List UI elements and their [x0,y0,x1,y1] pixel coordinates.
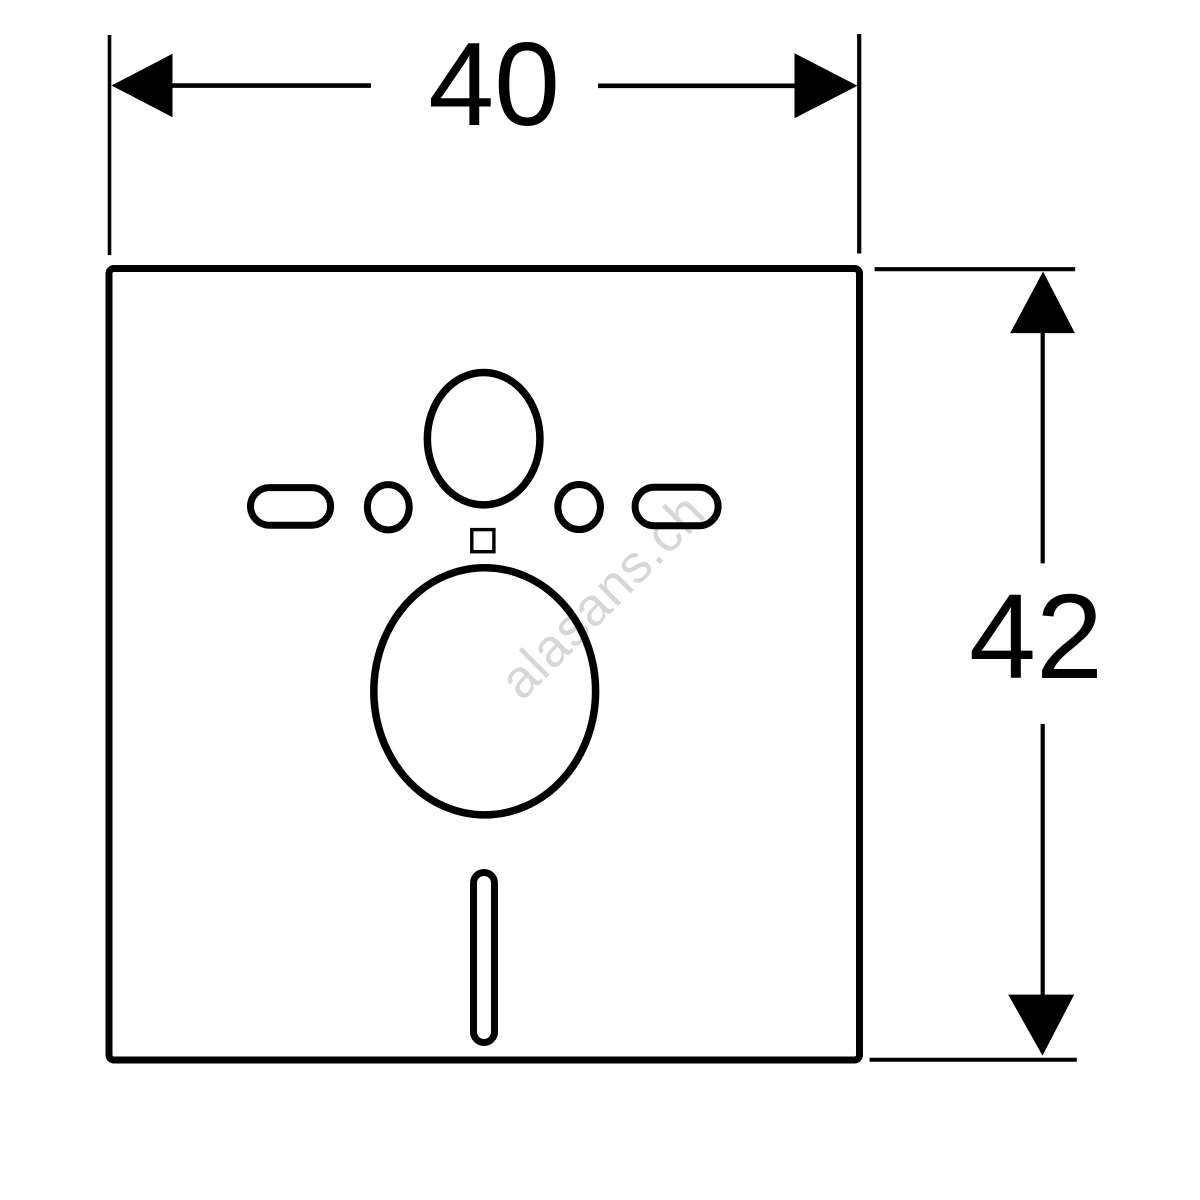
svg-text:42: 42 [969,569,1103,704]
svg-text:40: 40 [428,19,560,151]
